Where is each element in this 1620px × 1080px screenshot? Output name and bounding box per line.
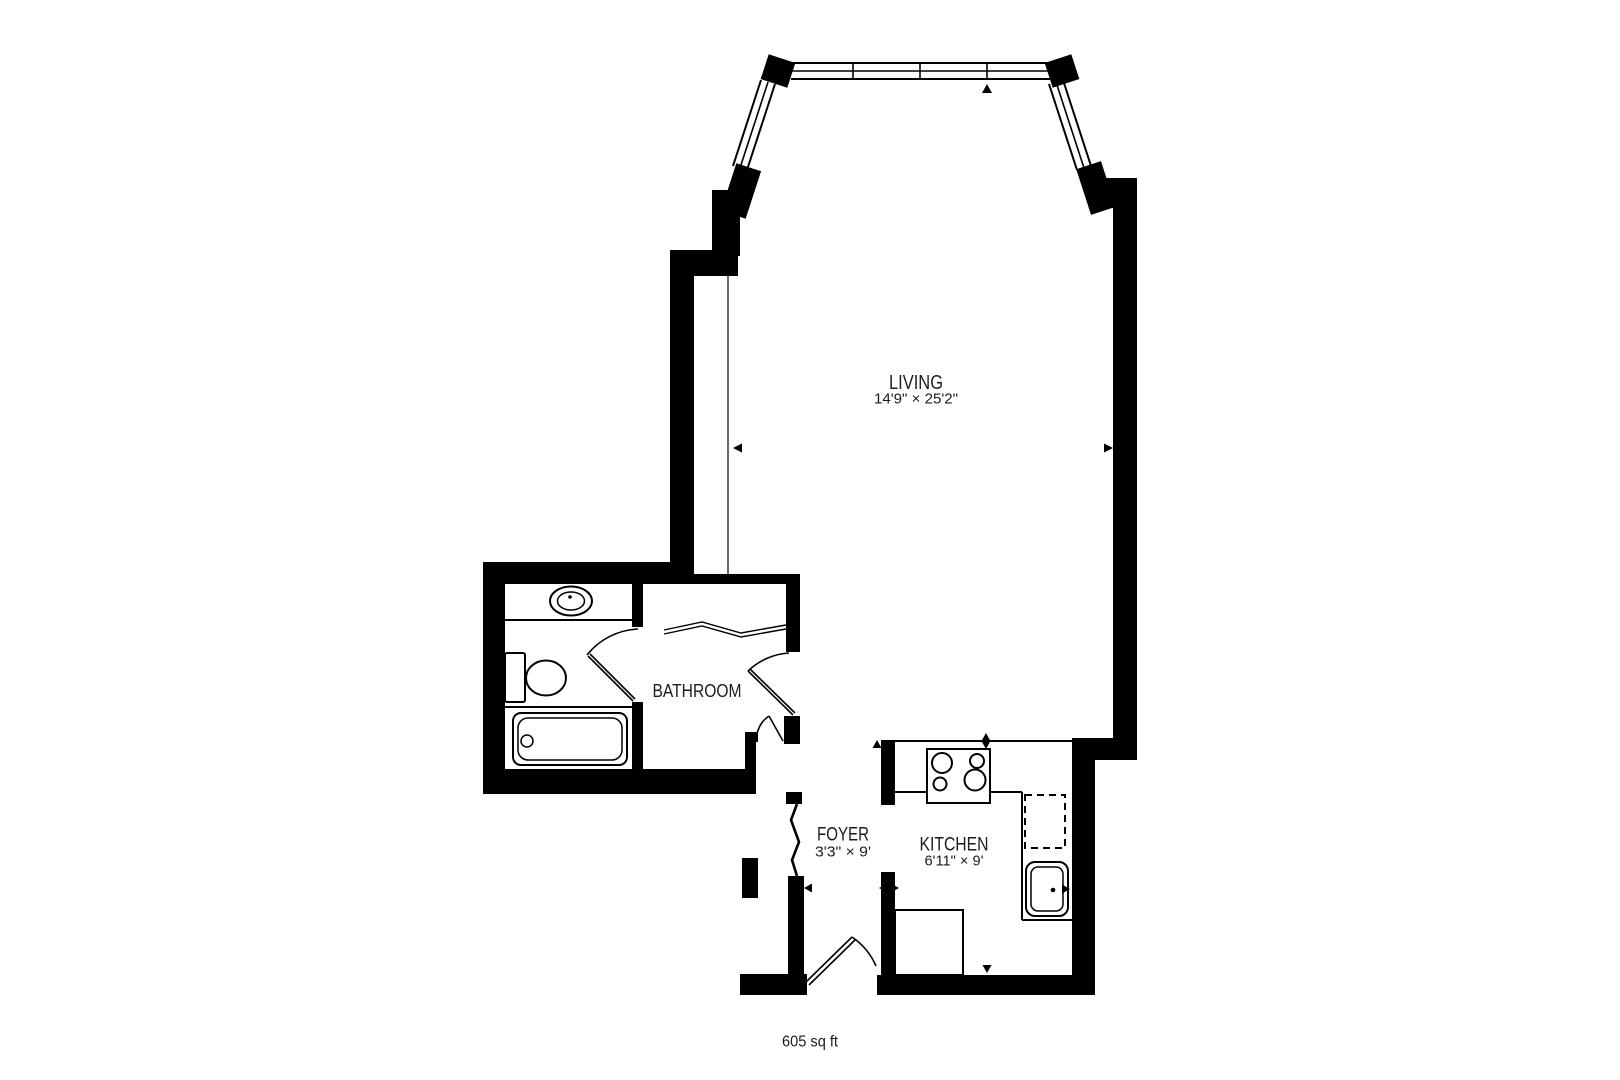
wall-segment xyxy=(742,858,758,898)
living-room-dimensions: 14'9" × 25'2" xyxy=(874,391,958,408)
hall-door xyxy=(748,653,795,715)
bathroom-door xyxy=(587,629,638,701)
wall-segment xyxy=(712,190,740,256)
toilet xyxy=(505,653,566,702)
wall-segment xyxy=(881,740,895,805)
wall-segment xyxy=(483,769,756,794)
wall-segment xyxy=(670,574,800,584)
wall-segment xyxy=(670,250,694,574)
wall-segment xyxy=(761,54,796,87)
floor-plan-canvas: LIVING 14'9" × 25'2" BATHROOM FOYER 3'3"… xyxy=(0,0,1620,1080)
arrow-right-icon xyxy=(1104,444,1113,453)
arrow-down-icon xyxy=(983,965,992,973)
wall-segment xyxy=(786,574,800,652)
foyer-dimensions: 3'3" × 9' xyxy=(815,844,871,861)
wall-segment xyxy=(483,562,505,794)
wall-segment xyxy=(1072,750,1095,995)
wall-segment xyxy=(745,732,756,772)
floor-plan-page: LIVING 14'9" × 25'2" BATHROOM FOYER 3'3"… xyxy=(0,0,1620,1080)
window-left-panel xyxy=(733,80,775,170)
bathroom-label: BATHROOM xyxy=(653,681,742,701)
wall-segment xyxy=(632,584,643,627)
kitchen-sink xyxy=(1026,862,1068,916)
closet-door xyxy=(756,716,783,741)
arrow-up-icon xyxy=(982,84,992,93)
bathroom-sink xyxy=(550,587,592,616)
wall-segment xyxy=(786,792,802,804)
arrow-down-icon xyxy=(982,741,991,749)
foyer-label: FOYER xyxy=(817,825,869,846)
wall-segment xyxy=(1113,196,1137,742)
total-area-label: 605 sq ft xyxy=(782,1034,839,1051)
dishwasher-dashed xyxy=(1025,795,1065,848)
bathtub xyxy=(513,713,627,765)
wall-segment xyxy=(877,975,1095,995)
wall-segment xyxy=(632,702,643,770)
window-right-panel xyxy=(1049,80,1091,170)
wall-segment xyxy=(784,716,800,744)
arrow-up-icon xyxy=(873,740,882,748)
wall-segment xyxy=(740,974,807,995)
entry-door xyxy=(806,937,876,985)
kitchen-dimensions: 6'11" × 9' xyxy=(925,853,984,870)
window-top-panel xyxy=(791,63,1051,79)
hall-closet xyxy=(664,622,786,637)
wall-segment xyxy=(483,562,673,584)
wall-segment xyxy=(788,876,804,975)
foyer-closet xyxy=(791,804,799,876)
base-cabinet xyxy=(895,910,963,975)
arrow-up-icon xyxy=(982,733,991,741)
stove-icon xyxy=(927,749,990,803)
arrow-left-icon xyxy=(733,444,742,453)
walls xyxy=(483,54,1137,995)
arrow-left-icon xyxy=(804,884,812,893)
